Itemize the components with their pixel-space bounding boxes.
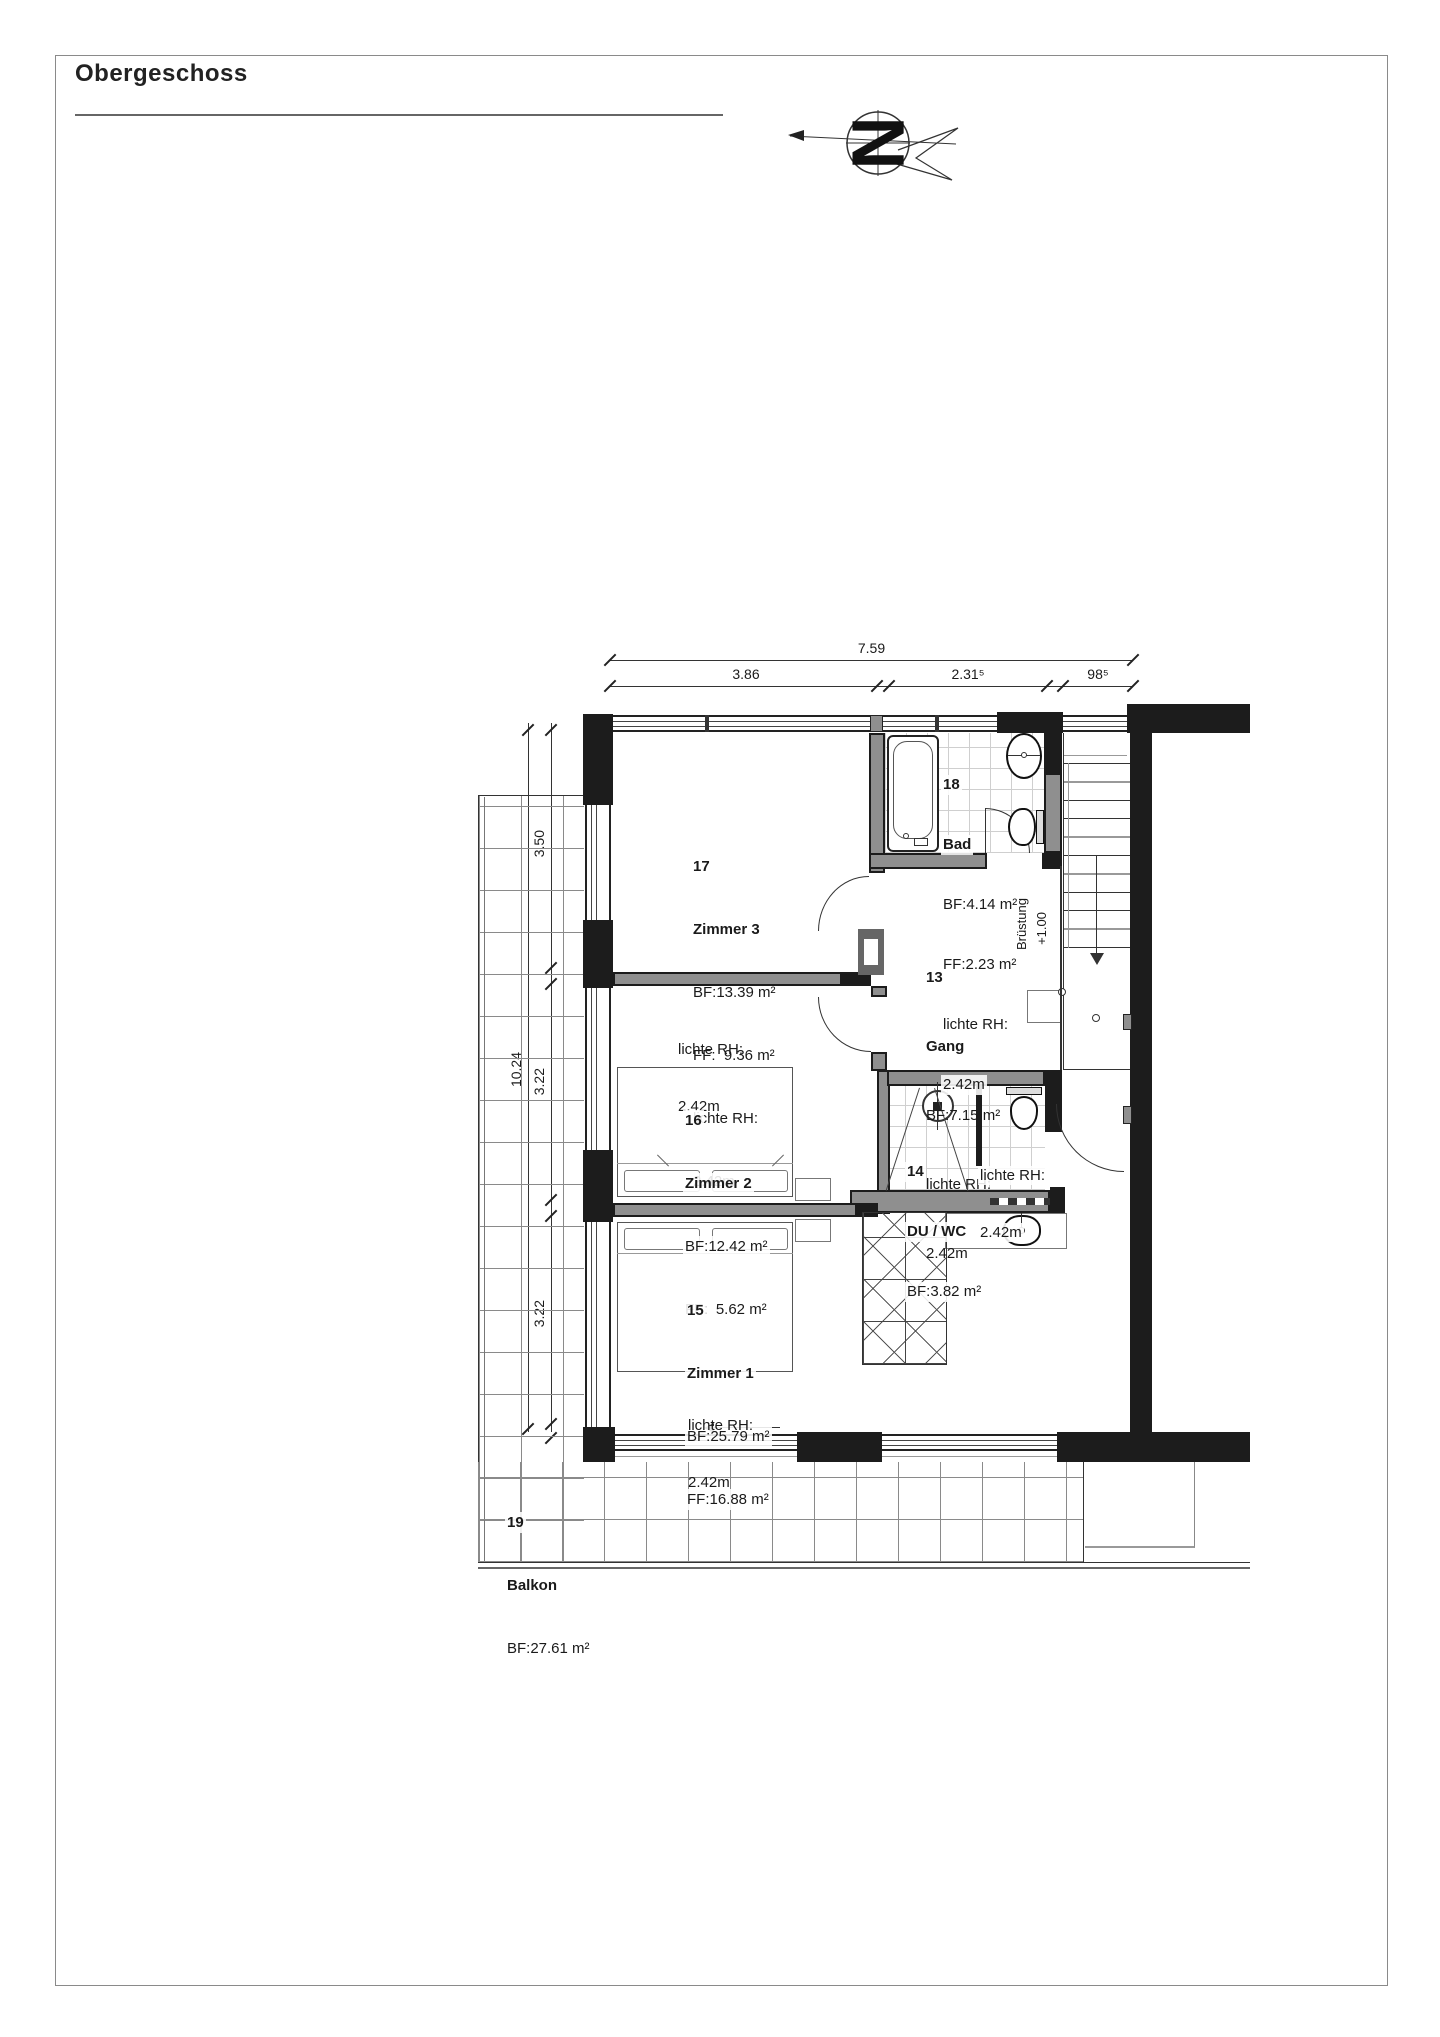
door-hinge-block — [1123, 1014, 1132, 1030]
nightstand — [795, 1219, 831, 1242]
door-hinge-block — [1123, 1106, 1132, 1124]
room-name: Gang — [926, 1035, 1000, 1058]
wall-stub — [870, 715, 883, 732]
window-band-left — [585, 805, 611, 920]
room-height-value: 2.42m — [688, 1473, 753, 1492]
interior-wall — [869, 733, 885, 873]
room-area-bf: BF:4.14 m² — [941, 895, 1019, 915]
dim-line-top-total — [610, 660, 1133, 661]
interior-wall — [871, 1052, 887, 1071]
room-number: 16 — [683, 1110, 704, 1131]
room-name: Balkon — [505, 1575, 559, 1596]
balcony-outer-edge — [478, 1562, 1250, 1569]
wall — [797, 1432, 882, 1462]
bathtub-inner — [893, 741, 933, 839]
dim-label-seg1: 3.86 — [610, 666, 882, 682]
room-name: Zimmer 2 — [683, 1173, 754, 1194]
room-height-label: lichte RH: — [978, 1166, 1047, 1185]
washbasin-tap — [1021, 752, 1027, 758]
room-name: Zimmer 3 — [693, 919, 776, 940]
wall — [583, 714, 613, 805]
wall — [583, 920, 613, 988]
north-arrow-icon: N — [786, 100, 964, 188]
room-label-duwc: 14 DU / WC BF:3.82 m² — [905, 1122, 983, 1342]
page-title: Obergeschoss — [75, 60, 248, 88]
title-underline — [75, 114, 723, 116]
room-height-value: 2.42m — [978, 1223, 1024, 1242]
north-letter: N — [837, 116, 920, 169]
wall-right — [1130, 733, 1152, 1432]
toilet-cistern — [1036, 810, 1044, 844]
dim-label-top-total: 7.59 — [610, 640, 1133, 656]
stair-landing — [1027, 990, 1062, 1023]
window-mullion — [705, 715, 709, 732]
parapet-line — [1060, 866, 1062, 1070]
window-band-left — [585, 1222, 611, 1427]
window-mullion — [935, 715, 939, 732]
room-height-label: lichte RH: — [688, 1416, 753, 1435]
balcony-side-strip — [478, 795, 584, 1563]
room-name: Bad — [941, 835, 973, 855]
room-number: 18 — [941, 775, 962, 795]
interior-wall-cap — [1050, 1187, 1065, 1213]
interior-wall — [871, 986, 887, 997]
room-label-zimmer1-height: lichte RH: 2.42m — [688, 1378, 753, 1530]
room-area-bf: BF:3.82 m² — [905, 1282, 983, 1302]
room-number: 13 — [926, 966, 1000, 989]
newel-post — [1092, 1014, 1100, 1022]
room-name: DU / WC — [905, 1222, 968, 1242]
wall — [997, 712, 1063, 733]
stair-boundary-line — [1063, 1069, 1130, 1070]
room-height-label: lichte RH: — [678, 1040, 743, 1059]
window-band-top — [613, 715, 997, 732]
room-area-bf: BF:12.42 m² — [683, 1236, 770, 1257]
balcony-edge-inner-line — [484, 797, 485, 1562]
terrace-below-outline — [1085, 1462, 1195, 1548]
window-band-left — [585, 988, 611, 1150]
interior-wall-cap — [1044, 733, 1062, 775]
dim-line-top-segments — [610, 686, 1133, 687]
room-area-bf: BF:13.39 m² — [693, 982, 776, 1003]
room-number: 14 — [905, 1162, 926, 1182]
window-sill-line — [882, 1456, 1057, 1457]
stair-direction-line — [1096, 855, 1097, 955]
stair-stringer-line — [1063, 733, 1064, 1070]
dim-label-seg2: 2.31⁵ — [889, 666, 1047, 682]
window-sill-line — [1063, 755, 1127, 756]
wall — [1057, 1432, 1250, 1462]
door-frame-inner — [864, 939, 878, 965]
north-arrow-head — [788, 130, 804, 141]
room-area: BF:27.61 m² — [505, 1638, 592, 1659]
stair-direction-arrow — [1090, 953, 1104, 965]
floor-plan-sheet: Obergeschoss N 7.59 3.86 2.31⁵ 98⁵ 10.24… — [0, 0, 1440, 2037]
wall-corner — [583, 1427, 615, 1462]
room-label-duwc-height: lichte RH: 2.42m — [978, 1128, 1047, 1280]
window-band-bottom — [882, 1434, 1057, 1451]
bathtub-faucet — [914, 838, 928, 846]
wall — [583, 1150, 613, 1222]
nightstand — [795, 1178, 831, 1201]
room-label-balkon: 19 Balkon BF:27.61 m² — [505, 1470, 592, 1701]
window-band-top-right — [1063, 715, 1127, 732]
bathtub-drain — [903, 833, 909, 839]
stair-stringer-line — [1068, 763, 1069, 948]
room-number: 15 — [685, 1300, 706, 1321]
parapet-height-label: +1.00 — [1034, 912, 1049, 945]
dim-label-seg3: 98⁵ — [1063, 666, 1133, 682]
room-number: 17 — [693, 856, 776, 877]
interior-wall-cap — [1042, 853, 1062, 869]
room-number: 19 — [505, 1512, 526, 1533]
wall — [1127, 704, 1250, 733]
